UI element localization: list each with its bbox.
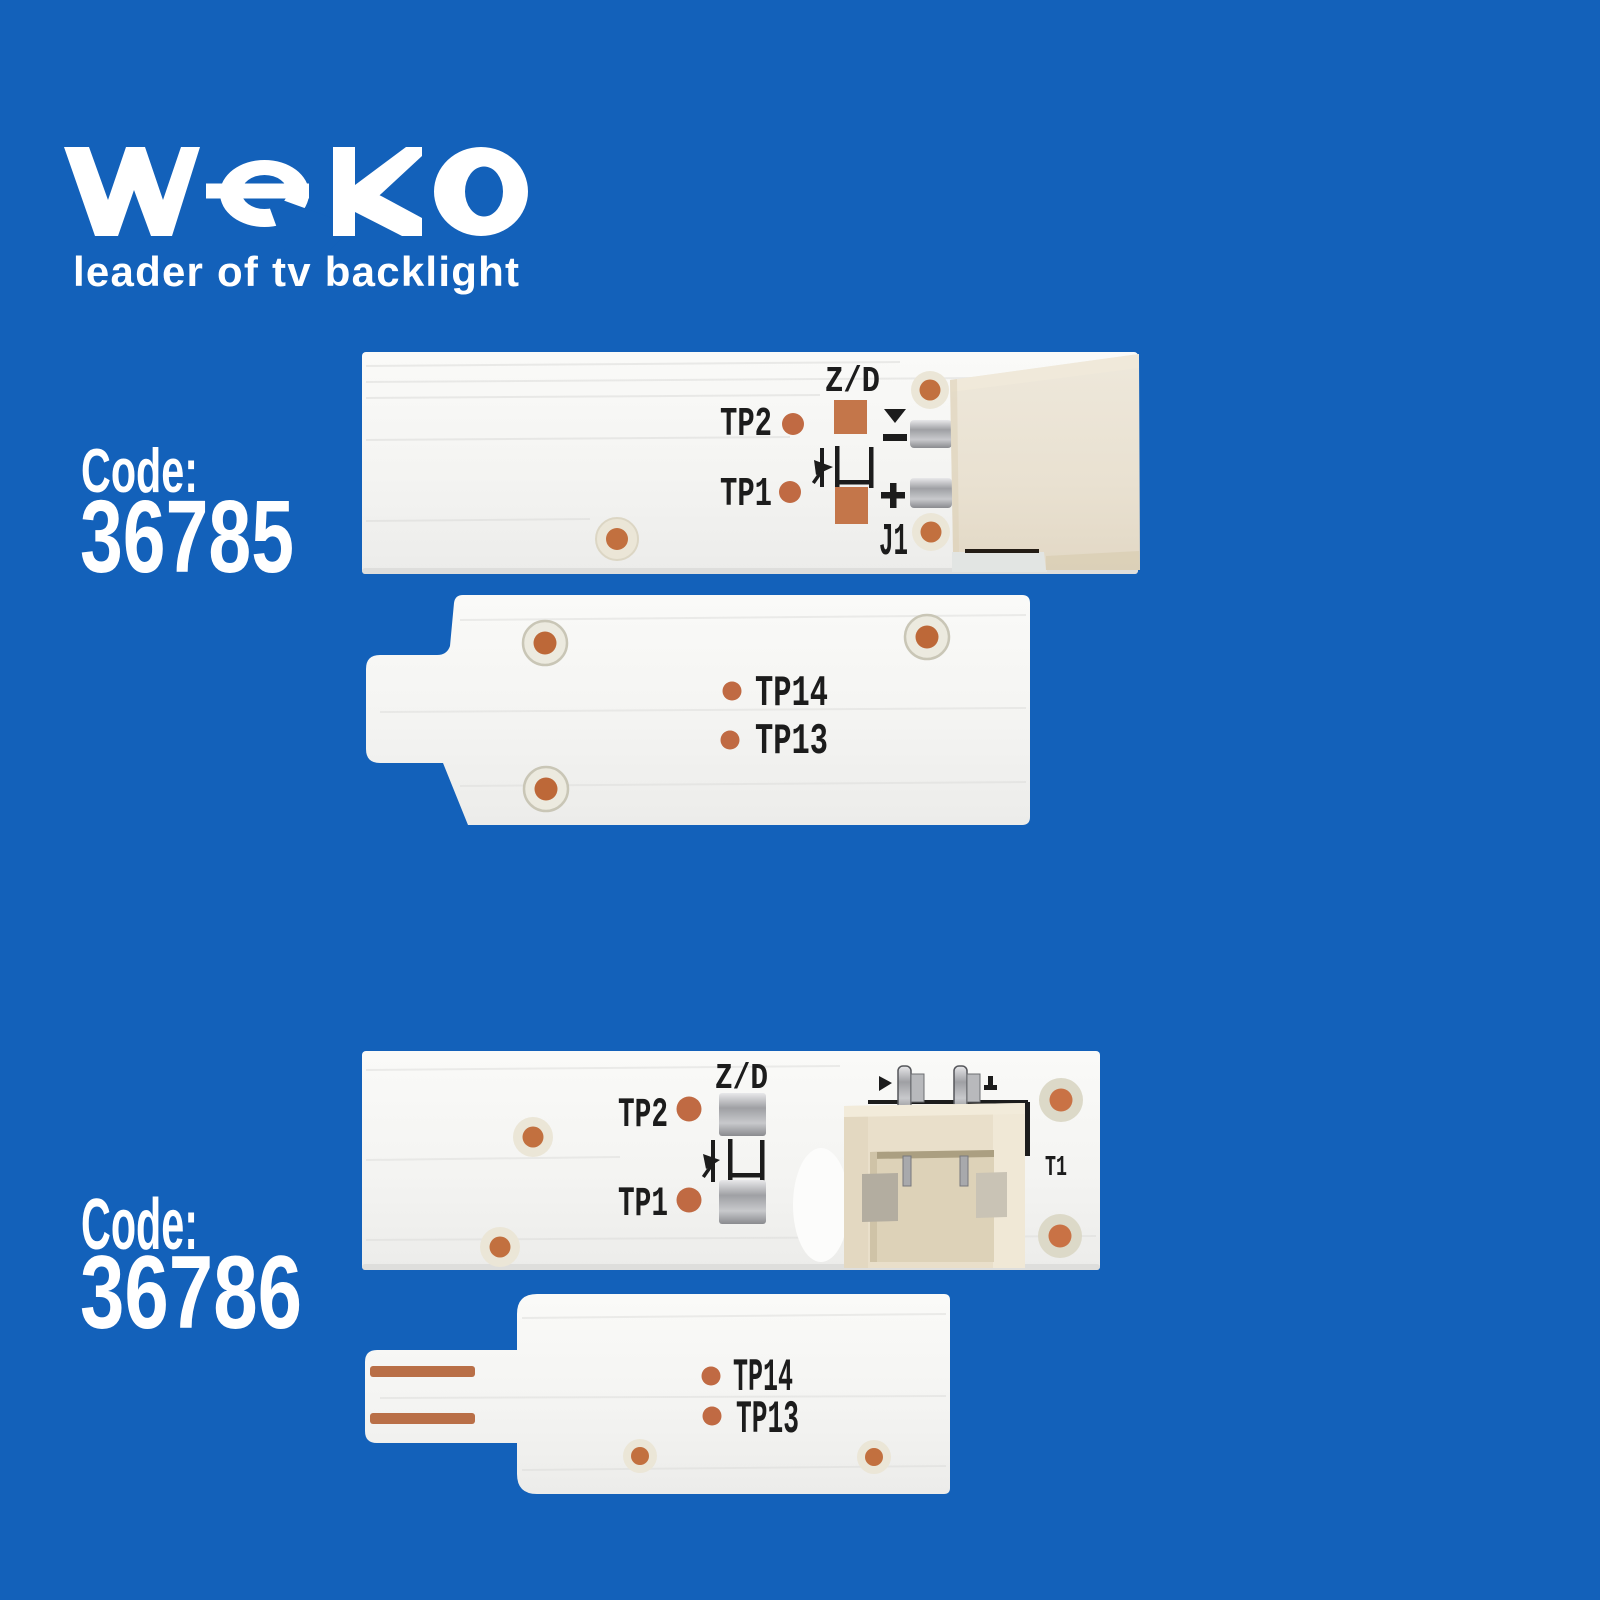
svg-text:36786: 36786 (80, 1235, 302, 1351)
svg-text:TP2: TP2 (618, 1091, 668, 1139)
svg-text:TP13: TP13 (755, 717, 828, 767)
svg-text:36785: 36785 (80, 479, 294, 594)
svg-text:Z/D: Z/D (825, 361, 880, 402)
svg-text:TP14: TP14 (755, 669, 828, 719)
svg-text:TP2: TP2 (720, 402, 772, 448)
svg-text:T1: T1 (1045, 1151, 1067, 1184)
svg-text:TP1: TP1 (720, 472, 772, 518)
svg-text:Z/D: Z/D (715, 1058, 768, 1099)
svg-text:TP1: TP1 (618, 1180, 668, 1228)
svg-text:TP13: TP13 (736, 1394, 799, 1446)
svg-text:leader of tv backlight: leader of tv backlight (73, 248, 519, 295)
svg-text:J1: J1 (879, 517, 908, 568)
